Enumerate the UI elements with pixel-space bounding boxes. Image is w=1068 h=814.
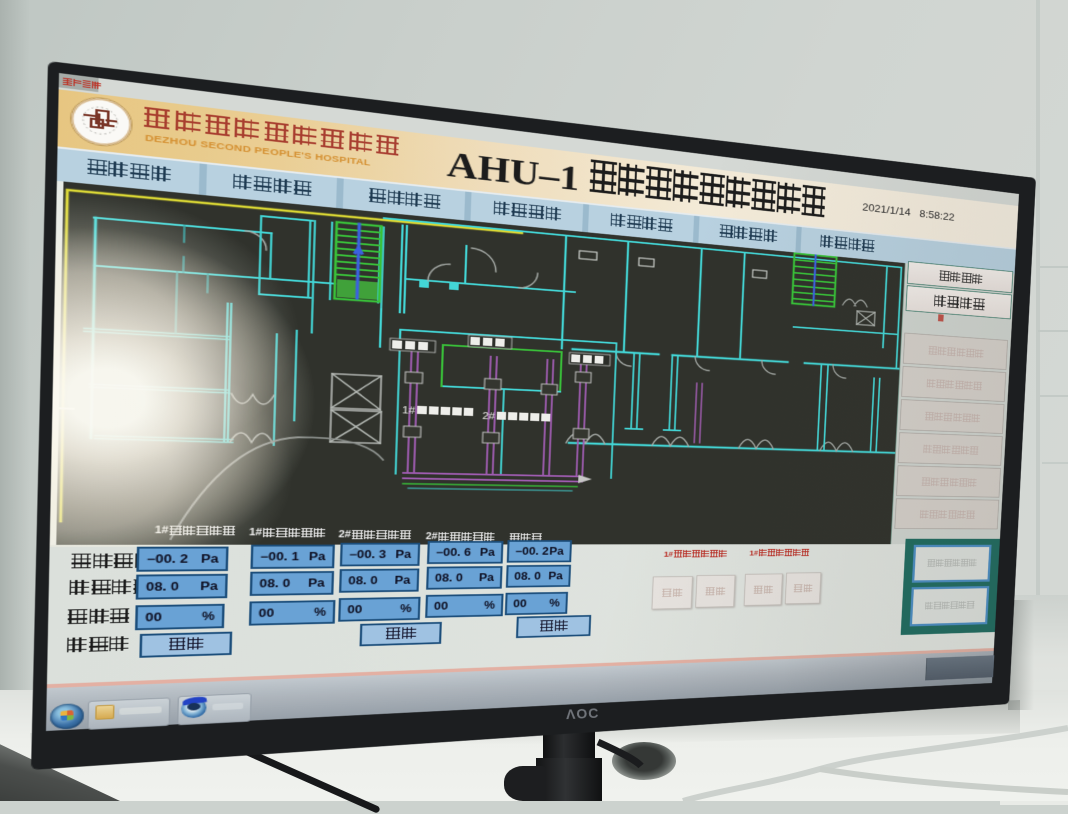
svg-text:2#: 2# xyxy=(482,410,495,421)
svg-text:1#: 1# xyxy=(402,404,416,416)
